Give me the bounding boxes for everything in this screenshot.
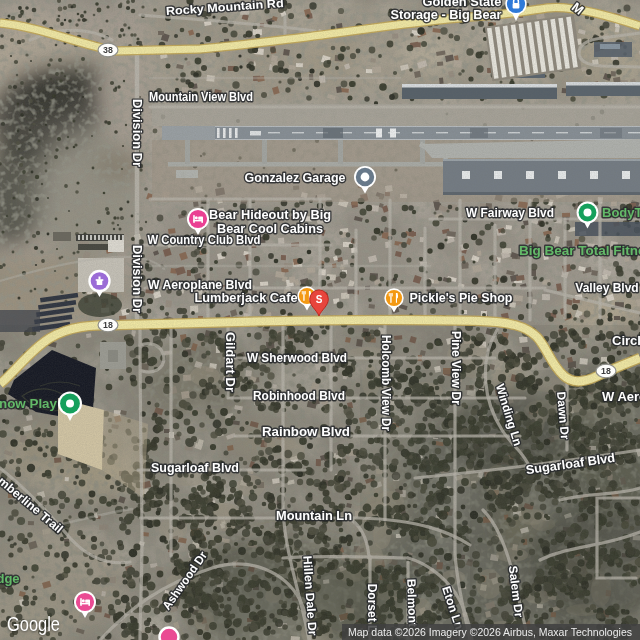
- svg-text:Mountain Ln: Mountain Ln: [276, 509, 352, 523]
- svg-text:18: 18: [103, 320, 113, 330]
- svg-text:Map data ©2026 Imagery ©2026: Map data ©2026 Imagery ©2026 Airbus, Max…: [348, 626, 632, 638]
- svg-text:Bear Hideout by Big: Bear Hideout by Big: [209, 207, 331, 222]
- svg-text:Lumberjack Cafe: Lumberjack Cafe: [195, 290, 298, 305]
- svg-text:Gonzalez Garage: Gonzalez Garage: [245, 170, 346, 185]
- svg-text:Belmont: Belmont: [404, 579, 420, 627]
- svg-text:W Fairway Blvd: W Fairway Blvd: [466, 206, 554, 220]
- svg-text:Bear Cool Cabins: Bear Cool Cabins: [217, 221, 323, 236]
- svg-text:dge: dge: [0, 571, 20, 586]
- svg-text:Circl: Circl: [612, 333, 640, 348]
- svg-text:Google: Google: [7, 613, 60, 635]
- svg-text:Pine View Dr: Pine View Dr: [449, 331, 463, 405]
- svg-text:Pickle's Pie Shop: Pickle's Pie Shop: [410, 290, 513, 305]
- svg-text:Division Dr: Division Dr: [130, 245, 144, 313]
- svg-text:Mountain View Blvd: Mountain View Blvd: [149, 90, 253, 104]
- svg-text:Big Bear Total Fitness: Big Bear Total Fitness: [519, 243, 640, 258]
- svg-text:W Aero: W Aero: [602, 389, 640, 404]
- svg-text:Division Dr: Division Dr: [130, 99, 144, 167]
- svg-text:Storage - Big Bear: Storage - Big Bear: [391, 7, 502, 22]
- svg-text:BodyTe: BodyTe: [602, 205, 640, 220]
- svg-text:S: S: [316, 294, 323, 305]
- svg-text:Sugarloaf Blvd: Sugarloaf Blvd: [151, 461, 239, 475]
- svg-text:Gildart Dr: Gildart Dr: [223, 332, 237, 392]
- svg-text:Robinhood Blvd: Robinhood Blvd: [253, 389, 345, 403]
- svg-text:Valley Blvd: Valley Blvd: [575, 281, 638, 295]
- svg-text:Holcomb View Dr: Holcomb View Dr: [379, 335, 393, 431]
- svg-text:38: 38: [103, 45, 113, 55]
- svg-text:W Sherwood Blvd: W Sherwood Blvd: [247, 351, 347, 365]
- svg-text:18: 18: [601, 366, 611, 376]
- svg-text:now Play: now Play: [0, 396, 57, 411]
- svg-text:Rainbow Blvd: Rainbow Blvd: [262, 425, 350, 439]
